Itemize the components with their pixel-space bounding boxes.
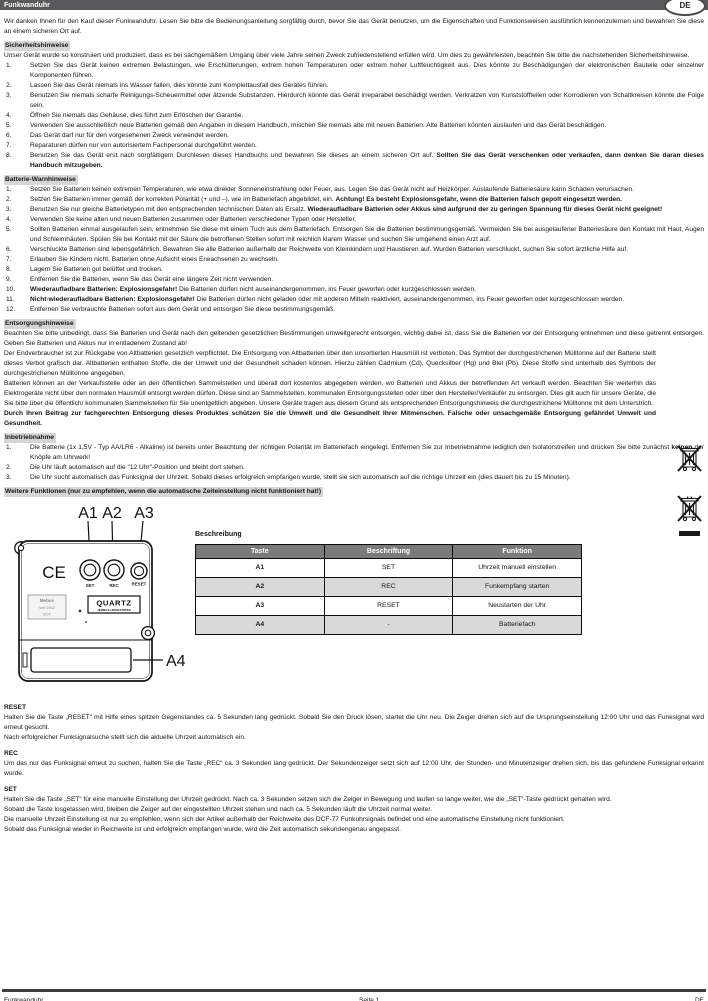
col-header-beschriftung: Beschriftung: [324, 545, 453, 559]
battery-item: 8.Lagern Sie Batterien gut belüftet und …: [4, 265, 704, 275]
battery-item: 4.Verwenden Sie keine alten und neuen Ba…: [4, 215, 704, 225]
diagram-label-a4: A4: [166, 653, 186, 670]
set-button: [80, 560, 100, 580]
setup-item: 1.Die Batterie (1x 1,5V - Typ AA/LR6 - A…: [4, 443, 704, 463]
disposal-paragraph-3: Batterien können an der Verkaufsstelle o…: [4, 379, 704, 409]
maker-sticker: Mebus seit 1902 DCF: [28, 595, 66, 619]
table-header-row: Taste Beschriftung Funktion: [196, 545, 582, 559]
battery-item: 11.Nicht-wiederaufladbare Batterien: Exp…: [4, 295, 704, 305]
rec-paragraph-1: Um das nur das Funksignal erneut zu such…: [4, 759, 704, 779]
quartz-label-box: QUARTZ JEWELS UNADJUSTED: [88, 596, 140, 613]
battery-item: 9.Entfernen Sie die Batterien, wenn Sie …: [4, 275, 704, 285]
battery-item: 5.Sollten Batterien einmal ausgelaufen s…: [4, 225, 704, 245]
safety-item: 8.Benutzen Sie das Gerät erst nach sorgf…: [4, 151, 704, 171]
set-button-label: SET: [86, 583, 95, 588]
footer-page-number: Seite 1: [359, 996, 379, 1001]
heading-battery-warnings: Batterie-Warnhinweise: [4, 175, 78, 185]
table-row: A4 - Batteriefach: [196, 616, 582, 635]
footer-language: DE: [695, 996, 704, 1001]
heading-reset: RESET: [4, 703, 704, 713]
manual-page: Funkwanduhr DE Wir danken Ihnen für den …: [0, 0, 708, 1001]
reset-button-label: RESET: [132, 582, 147, 587]
table-row: A2 REC Funkempfang starten: [196, 578, 582, 597]
table-title: Beschreibung: [195, 530, 585, 540]
weee-underline-bar: [679, 531, 700, 536]
heading-setup: Inbetriebnahme: [4, 433, 56, 443]
col-header-funktion: Funktion: [453, 545, 582, 559]
description-table-block: Beschreibung Taste Beschriftung Funktion…: [195, 530, 585, 635]
reset-paragraph-1: Halten Sie die Taste „RESET“ mit Hilfe e…: [4, 713, 704, 733]
diagram-label-a1: A1: [78, 505, 98, 522]
battery-item: 2.Setzen Sie Batterien immer gemäß der k…: [4, 195, 704, 205]
svg-text:DCF: DCF: [43, 613, 51, 617]
setup-item: 3.Die Uhr sucht automatisch das Funksign…: [4, 473, 704, 483]
intro-paragraph: Wir danken Ihnen für den Kauf dieser Fun…: [4, 17, 704, 37]
language-badge: DE: [664, 0, 706, 16]
safety-item: 2.Lassen Sie das Gerät niemals ins Wasse…: [4, 81, 704, 91]
battery-compartment: [31, 648, 131, 672]
set-paragraph-2: Sobald die Taste losgelassen wird, bleib…: [4, 805, 704, 815]
diagram-label-a2: A2: [102, 505, 122, 522]
battery-disposal-bin-icon: [676, 444, 703, 478]
reset-button: [131, 563, 147, 579]
footer-doc-name: Funkwanduhr: [4, 996, 43, 1001]
safety-lead: Unser Gerät wurde so konstruiert und pro…: [4, 51, 704, 61]
set-paragraph-3: Die manuelle Uhrzeit Einstellung ist nur…: [4, 815, 704, 825]
col-header-taste: Taste: [196, 545, 325, 559]
clock-movement-diagram: A1 A2 A3 CE: [6, 499, 194, 697]
safety-item: 4.Öffnen Sie niemals das Gehäuse, dies f…: [4, 111, 704, 121]
screw-dot: [85, 621, 87, 623]
svg-text:QUARTZ: QUARTZ: [96, 599, 131, 608]
safety-item: 3.Benutzen Sie niemals scharfe Reinigung…: [4, 91, 704, 111]
table-row: A3 RESET Neustarten der Uhr: [196, 597, 582, 616]
heading-safety: Sicherheitshinweise: [4, 41, 70, 51]
table-row: A1 SET Uhrzeit manuell einstellen: [196, 559, 582, 578]
heading-set: SET: [4, 785, 704, 795]
disposal-paragraph-bold: Durch Ihren Beitrag zur fachgerechten En…: [4, 409, 704, 429]
battery-item: 10.Wiederaufladbare Batterien: Explosion…: [4, 285, 704, 295]
heading-disposal: Entsorgungshinweise: [4, 319, 76, 329]
page-title: Funkwanduhr: [4, 0, 50, 11]
reset-paragraph-2: Nach erfolgreicher Funksignalsuche stell…: [4, 733, 704, 743]
svg-text:seit 1902: seit 1902: [39, 606, 54, 610]
diagram-label-a3: A3: [134, 505, 154, 522]
rec-button: [104, 560, 124, 580]
weee-disposal-bin-icon: [676, 494, 703, 541]
heading-more-functions: Weitere Funktionen (nur zu empfehlen, we…: [4, 487, 323, 497]
safety-item: 7.Reparaturen dürfen nur von autorisiert…: [4, 141, 704, 151]
rec-button-label: REC: [109, 583, 119, 588]
svg-text:Mebus: Mebus: [40, 598, 55, 603]
safety-item: 6.Das Gerät darf nur für den vorgesehene…: [4, 131, 704, 141]
ce-mark-icon: CE: [42, 563, 66, 582]
page-header-bar: Funkwanduhr: [0, 0, 708, 10]
battery-item: 3.Benutzen Sie nur gleiche Batterietypen…: [4, 205, 704, 215]
setup-item: 2.Die Uhr läuft automatisch auf die "12 …: [4, 463, 704, 473]
button-description-table: Taste Beschriftung Funktion A1 SET Uhrze…: [195, 544, 582, 635]
figure-row: A1 A2 A3 CE: [4, 499, 704, 697]
safety-item: 5.Verwenden Sie ausschließlich neue Batt…: [4, 121, 704, 131]
battery-item: 12.Entfernen Sie verbrauchte Batterien s…: [4, 305, 704, 315]
battery-item: 6.Verschluckte Batterien sind lebensgefä…: [4, 245, 704, 255]
battery-clip: [23, 653, 27, 667]
disposal-paragraph-2: Der Endverbraucher ist zur Rückgabe von …: [4, 349, 704, 379]
set-paragraph-4: Sobald das Funksignal wieder in Reichwei…: [4, 825, 704, 835]
battery-item: 7.Erlauben Sie Kindern nicht, Batterien …: [4, 255, 704, 265]
screw-dot: [79, 610, 82, 613]
disposal-paragraph-1: Beachten Sie bitte unbedingt, dass Sie B…: [4, 329, 704, 349]
safety-item: 1.Setzen Sie das Gerät keinen extremen B…: [4, 61, 704, 81]
heading-rec: REC: [4, 749, 704, 759]
svg-text:JEWELS UNADJUSTED: JEWELS UNADJUSTED: [97, 608, 132, 612]
set-paragraph-1: Halten Sie die Taste „SET“ für eine manu…: [4, 795, 704, 805]
page-footer: Funkwanduhr Seite 1 DE: [0, 989, 708, 1001]
battery-item: 1.Setzen Sie Batterien keinen extremen T…: [4, 185, 704, 195]
